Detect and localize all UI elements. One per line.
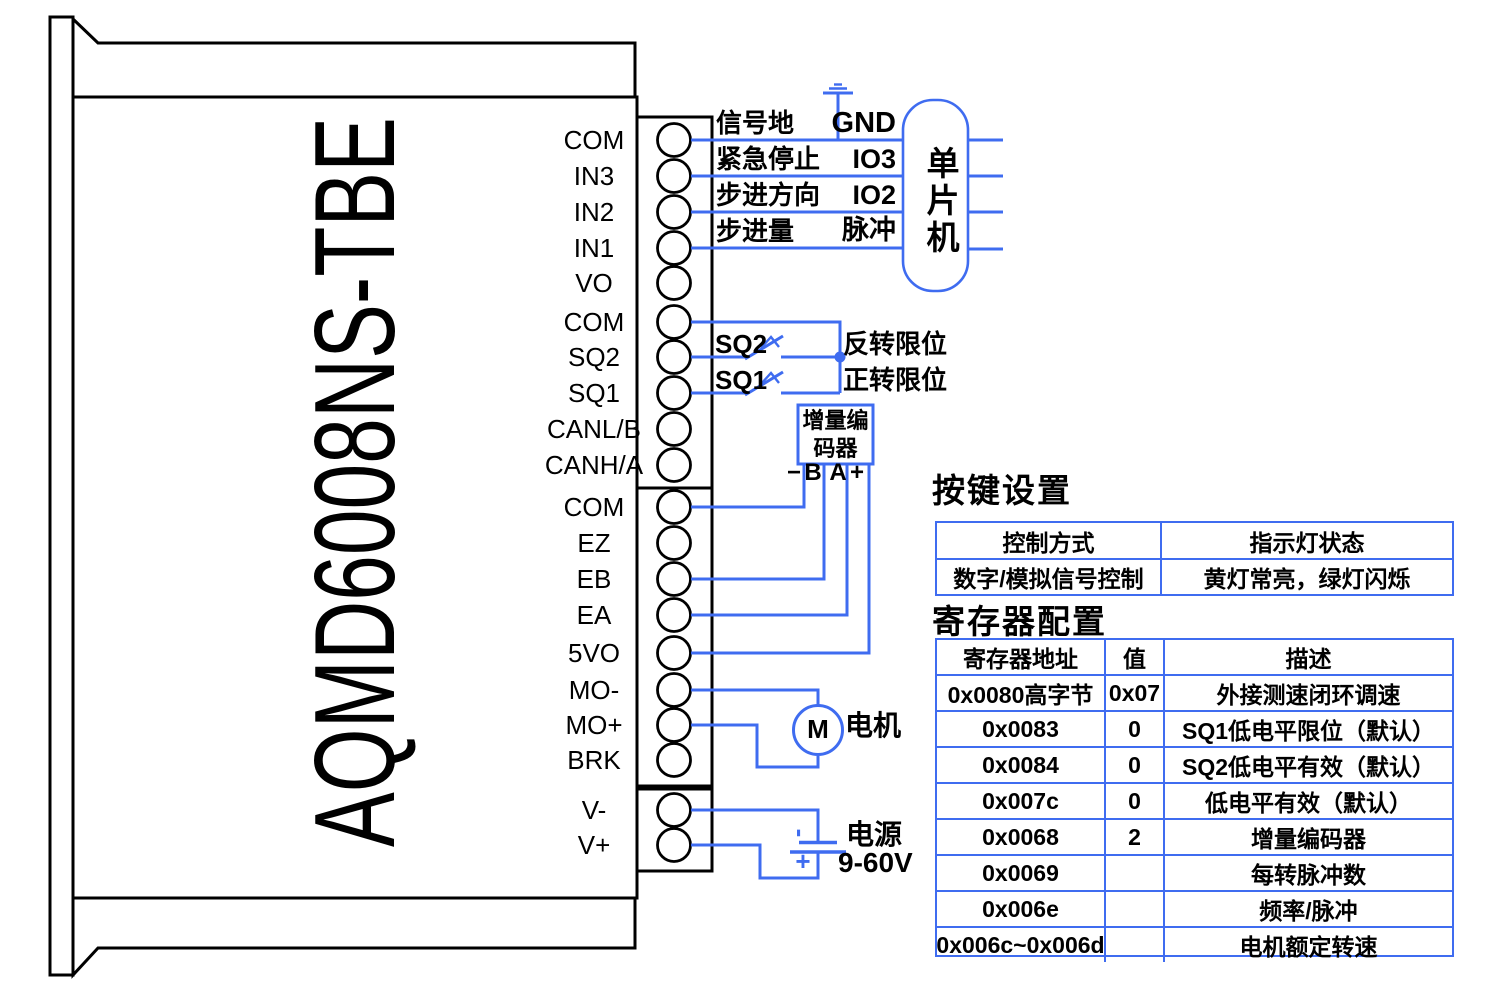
table-header-cell: 控制方式 xyxy=(937,523,1160,558)
encoder-label: 增量编 码器 xyxy=(798,405,873,464)
table-header-cell: 指示灯状态 xyxy=(1160,523,1452,558)
table-cell: 0 xyxy=(1104,746,1163,782)
signal-label-ground: 信号地 xyxy=(716,110,794,136)
switch-name-sq2: SQ2 xyxy=(715,331,767,357)
pin-label: BRK xyxy=(504,745,684,775)
encoder-pin-b: B xyxy=(801,461,825,485)
mcu-pin-pulse: 脉冲 xyxy=(842,217,896,244)
device-model-label: AQMD6008NS-TBE xyxy=(296,127,416,847)
pin-label: COM xyxy=(504,125,684,155)
pin-label: MO- xyxy=(504,675,684,705)
pin-label: CANH/A xyxy=(504,450,684,480)
mcu-pin-gnd: GND xyxy=(832,109,896,138)
table-cell: 增量编码器 xyxy=(1163,818,1452,854)
encoder-label-line2: 码器 xyxy=(813,435,857,463)
pin-label: IN2 xyxy=(504,197,684,227)
table-cell: 0x0080高字节 xyxy=(937,674,1104,710)
pin-label: V+ xyxy=(504,830,684,860)
table-cell: 0x006e xyxy=(937,890,1104,926)
table-cell: 黄灯常亮，绿灯闪烁 xyxy=(1160,558,1452,594)
table-header-cell: 值 xyxy=(1104,640,1163,674)
table-cell: 2 xyxy=(1104,818,1163,854)
heatsink-strip xyxy=(50,17,73,975)
table-header-cell: 寄存器地址 xyxy=(937,640,1104,674)
wire-encoder-plus xyxy=(691,464,869,653)
table-cell: 数字/模拟信号控制 xyxy=(937,558,1160,594)
mcu-pin-io2: IO2 xyxy=(852,182,896,209)
table-cell xyxy=(1104,890,1163,926)
register-table: 寄存器地址 值 描述 0x0080高字节 0x07 外接测速闭环调速 0x008… xyxy=(935,638,1454,957)
table-cell: 0 xyxy=(1104,782,1163,818)
switch-name-sq1: SQ1 xyxy=(715,367,767,393)
table-cell: 0x07 xyxy=(1104,674,1163,710)
pin-label: EB xyxy=(504,564,684,594)
table-cell: 每转脉冲数 xyxy=(1163,854,1452,890)
mcu-pin-io3: IO3 xyxy=(852,146,896,173)
table-cell: 0x0084 xyxy=(937,746,1104,782)
key-settings-title: 按键设置 xyxy=(932,474,1072,507)
pin-label: COM xyxy=(504,492,684,522)
top-flange xyxy=(73,19,635,97)
signal-label-estop: 紧急停止 xyxy=(716,146,820,172)
signal-label-step: 步进量 xyxy=(716,218,794,244)
battery-positive-mark: + xyxy=(789,848,817,874)
pin-label: V- xyxy=(504,795,684,825)
pin-label: IN3 xyxy=(504,161,684,191)
table-cell: 频率/脉冲 xyxy=(1163,890,1452,926)
table-cell xyxy=(1104,926,1163,962)
table-cell: 0x0083 xyxy=(937,710,1104,746)
power-label: 电源 xyxy=(846,821,902,849)
wiring-diagram: AQMD6008NS-TBE COM IN3 IN2 IN1 VO COM SQ… xyxy=(0,0,1500,995)
pin-label: MO+ xyxy=(504,710,684,740)
table-header-cell: 描述 xyxy=(1163,640,1452,674)
limit-label-reverse: 反转限位 xyxy=(843,331,947,357)
pin-label: 5VO xyxy=(504,638,684,668)
table-cell: SQ2低电平有效（默认） xyxy=(1163,746,1452,782)
signal-label-direction: 步进方向 xyxy=(716,182,820,208)
encoder-label-line1: 增量编 xyxy=(802,407,868,435)
battery-negative-mark: - xyxy=(788,819,814,847)
mcu-label: 单片机 xyxy=(917,146,957,276)
table-cell: 0x007c xyxy=(937,782,1104,818)
table-cell: 电机额定转速 xyxy=(1163,926,1452,962)
table-cell: 0x0068 xyxy=(937,818,1104,854)
pin-label: EZ xyxy=(504,528,684,558)
table-cell xyxy=(1104,854,1163,890)
pin-label: VO xyxy=(504,268,684,298)
pin-label: SQ2 xyxy=(504,342,684,372)
encoder-pin-plus: + xyxy=(845,461,869,485)
register-config-title: 寄存器配置 xyxy=(932,605,1107,638)
pin-label: IN1 xyxy=(504,233,684,263)
power-voltage: 9-60V xyxy=(838,849,913,877)
motor-label: 电机 xyxy=(845,712,901,740)
pin-label: SQ1 xyxy=(504,378,684,408)
pin-label: COM xyxy=(504,307,684,337)
key-settings-table: 控制方式 指示灯状态 数字/模拟信号控制 黄灯常亮，绿灯闪烁 xyxy=(935,521,1454,596)
table-cell: 外接测速闭环调速 xyxy=(1163,674,1452,710)
table-cell: 0x0069 xyxy=(937,854,1104,890)
limit-label-forward: 正转限位 xyxy=(843,367,947,393)
motor-symbol: M xyxy=(802,716,834,742)
pin-label: CANL/B xyxy=(504,414,684,444)
bottom-flange xyxy=(73,898,635,975)
table-cell: 0x006c~0x006d xyxy=(937,926,1104,962)
table-cell: SQ1低电平限位（默认） xyxy=(1163,710,1452,746)
table-cell: 低电平有效（默认） xyxy=(1163,782,1452,818)
table-cell: 0 xyxy=(1104,710,1163,746)
pin-label: EA xyxy=(504,600,684,630)
